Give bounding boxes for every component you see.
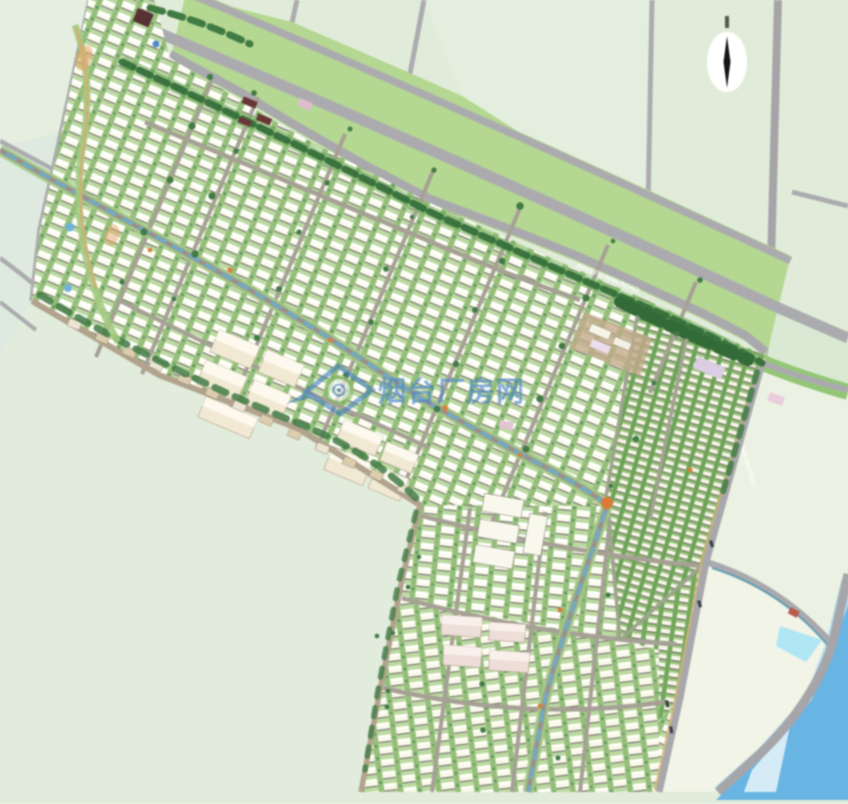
svg-text:烟台厂房网: 烟台厂房网 bbox=[378, 375, 526, 407]
